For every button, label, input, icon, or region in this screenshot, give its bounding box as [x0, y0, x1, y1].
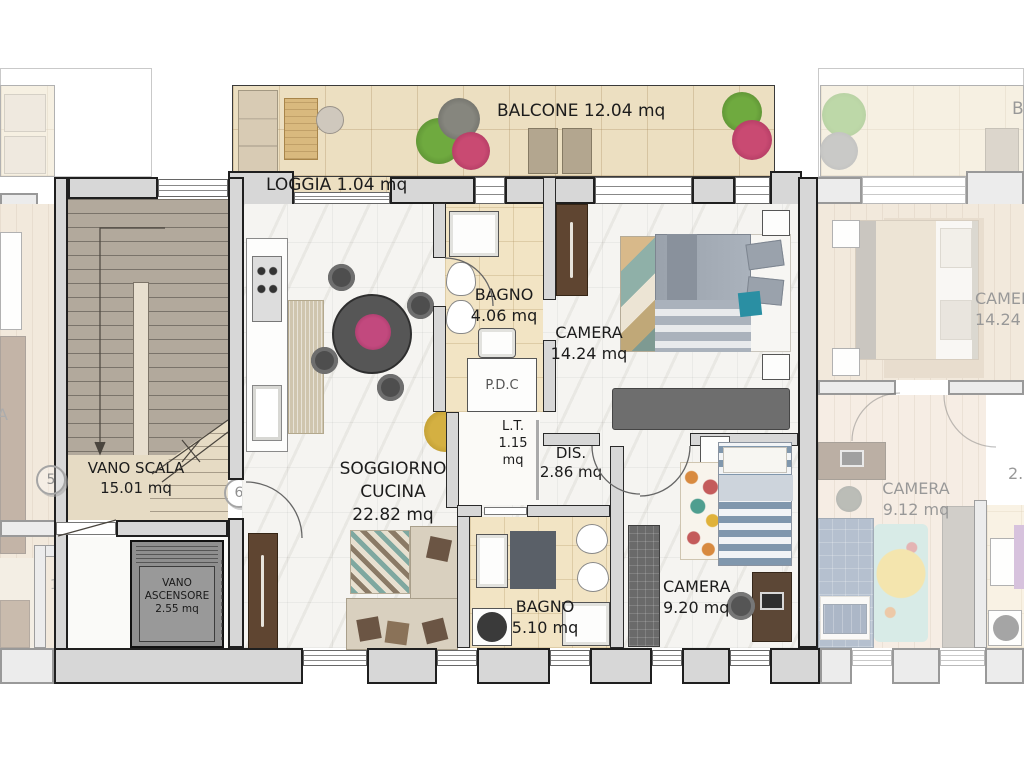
dining-chair [311, 347, 338, 374]
bagno1-left-wall-b [433, 306, 446, 412]
balcone-label: BALCONE 12.04 mq [497, 100, 665, 123]
single-bed-duvet-top [719, 475, 793, 501]
vano-ascensore-label: VANO ASCENSORE 2.55 mq [132, 577, 222, 616]
right-bottom-wall-a [820, 648, 852, 684]
dining-chair [328, 264, 355, 291]
bottom-wall-b [367, 648, 437, 684]
balcony-flowers-icon [452, 132, 490, 170]
stairwell-top-wall [68, 177, 158, 199]
stairwell-left-wall [54, 177, 68, 662]
right-camera-bottom-label: CAMERA 9.12 mq [856, 478, 976, 520]
dis-label: DIS. 2.86 mq [535, 444, 607, 482]
balcony-side-table [316, 106, 344, 134]
left-bottom-wall [0, 648, 54, 684]
right-mid-wall-b [948, 380, 1024, 395]
top-wall-pillar [692, 177, 735, 204]
camera2-chair [727, 592, 755, 620]
bottom-window [550, 650, 590, 666]
camera1-wardrobe-handle-icon [570, 222, 573, 278]
lt-main-label: L.T. 1.15 mq [492, 418, 534, 469]
camera1-balcony-door [595, 177, 692, 204]
right-laptop-icon [840, 450, 864, 467]
dining-chair [407, 292, 434, 319]
party-wall-right [798, 177, 818, 648]
shower1 [449, 211, 499, 257]
bagno1-left-wall-a [433, 203, 446, 258]
bagno2-label: BAGNO 5.10 mq [504, 596, 586, 638]
right-top-wall-b [966, 171, 1024, 206]
loggia-label: LOGGIA 1.04 mq [266, 174, 407, 197]
right-bed-pillow [940, 300, 972, 340]
dis-wall-west [543, 433, 600, 446]
left-partial-room-label: A [0, 404, 8, 425]
bottom-wall-c [477, 648, 550, 684]
unit-5-marker: 5 [36, 465, 66, 495]
bagno2-sink [476, 534, 508, 588]
nightstand [762, 354, 790, 380]
table-flowers-icon [355, 314, 391, 350]
right-mid-wall-a [818, 380, 896, 395]
right-wardrobe [942, 506, 976, 648]
right-bottom-window [940, 650, 985, 666]
right-bottom-wall-c [985, 648, 1024, 684]
bottom-wall-d [590, 648, 652, 684]
nightstand [762, 210, 790, 236]
bed-stripe-blanket [655, 300, 751, 352]
sofa-pillow [356, 616, 381, 641]
top-window [475, 177, 505, 204]
camera2-wardrobe [628, 525, 660, 647]
right-balcony-plant-icon [822, 93, 866, 137]
landing-door-leaf [56, 522, 116, 535]
washing-machine-drum-icon [477, 612, 507, 642]
bagno1-camera1-wall [543, 177, 556, 300]
bottom-wall-e [682, 648, 730, 684]
stairwell-window [158, 179, 228, 197]
single-bed-pillow [723, 447, 787, 473]
right-balcony-chair [985, 128, 1019, 174]
camera1-label: CAMERA 14.24 mq [541, 322, 637, 364]
single-bed [718, 442, 792, 566]
left-mid-wall [0, 520, 56, 537]
bagno2-top-wall-a [457, 505, 482, 517]
camera2-label: CAMERA 9.20 mq [663, 576, 730, 618]
bagno2-mat [510, 531, 556, 589]
balcony-sofa [238, 90, 278, 174]
left-furniture [0, 232, 22, 330]
camera1-bench [612, 388, 790, 430]
double-bed [655, 234, 791, 352]
right-washing-machine-drum-icon [993, 615, 1019, 641]
right-bed-pillow [940, 228, 972, 268]
sofa-pillow [385, 621, 410, 646]
balcony-table [284, 98, 318, 160]
right-bed-single-pillow2 [823, 604, 867, 634]
right-top-window [862, 177, 966, 204]
entrance-wall-upper [228, 177, 244, 480]
vano-scala-label: VANO SCALA 15.01 mq [80, 458, 192, 498]
right-bottom-window [852, 650, 892, 666]
bagno2-top-wall-b [527, 505, 610, 517]
right-kids-rug [874, 524, 928, 642]
balcony-chair [562, 128, 592, 174]
right-bottom-wall-b [892, 648, 940, 684]
toilet-icon [576, 524, 608, 554]
bagno1-sink [478, 328, 516, 358]
bagno2-door-leaf [484, 507, 527, 515]
bottom-window [652, 650, 682, 666]
top-window [735, 177, 770, 204]
right-nightstand [832, 348, 860, 376]
entrance-wall-lower [228, 518, 244, 648]
niche-left-wall [446, 412, 459, 508]
bagno2-camera2-wall [610, 446, 624, 648]
pdc-box: P.D.C [467, 358, 537, 412]
left-balcony-armchair [4, 94, 46, 132]
right-balcony-plant-icon [820, 132, 858, 170]
sofa-pillow [426, 536, 452, 562]
right-partial-label: 2. [1008, 463, 1023, 484]
bottom-window [730, 650, 770, 666]
bottom-wall-f [770, 648, 820, 684]
bottom-wall-a [54, 648, 303, 684]
right-balcone-partial-label: B [1012, 98, 1024, 121]
bottom-window [437, 650, 477, 666]
bed-pillow [745, 240, 784, 271]
balcony-flowers-icon [732, 120, 772, 160]
floor-plan: A L.T. 1.76 mq P.D.C B [0, 0, 1024, 768]
wardrobe-handle-icon [261, 555, 264, 627]
elevator-machinery-hatch [136, 545, 218, 563]
stair-divider [133, 282, 149, 456]
corner-sofa [346, 526, 458, 650]
stove-icon [252, 256, 282, 322]
kitchen-sink-icon [252, 385, 282, 441]
dining-chair [377, 374, 404, 401]
left-balcony-armchair [4, 136, 46, 174]
right-camera-top-label: CAMERA 14.24 [975, 288, 1024, 330]
bottom-window [303, 650, 367, 666]
right-bath-towel [1014, 525, 1024, 589]
bidet-icon [577, 562, 609, 592]
camera2-laptop-icon [760, 592, 784, 610]
bagno2-left-wall [457, 505, 470, 648]
landing-lower-wall [116, 520, 228, 537]
pdc-label: P.D.C [485, 377, 518, 394]
left-bottom-furniture [0, 600, 30, 648]
right-bath-wall [974, 500, 987, 648]
balcony-chair [528, 128, 558, 174]
right-nightstand [832, 220, 860, 248]
bagno1-label: BAGNO 4.06 mq [462, 284, 546, 326]
bed-teal-pillow [738, 291, 762, 317]
